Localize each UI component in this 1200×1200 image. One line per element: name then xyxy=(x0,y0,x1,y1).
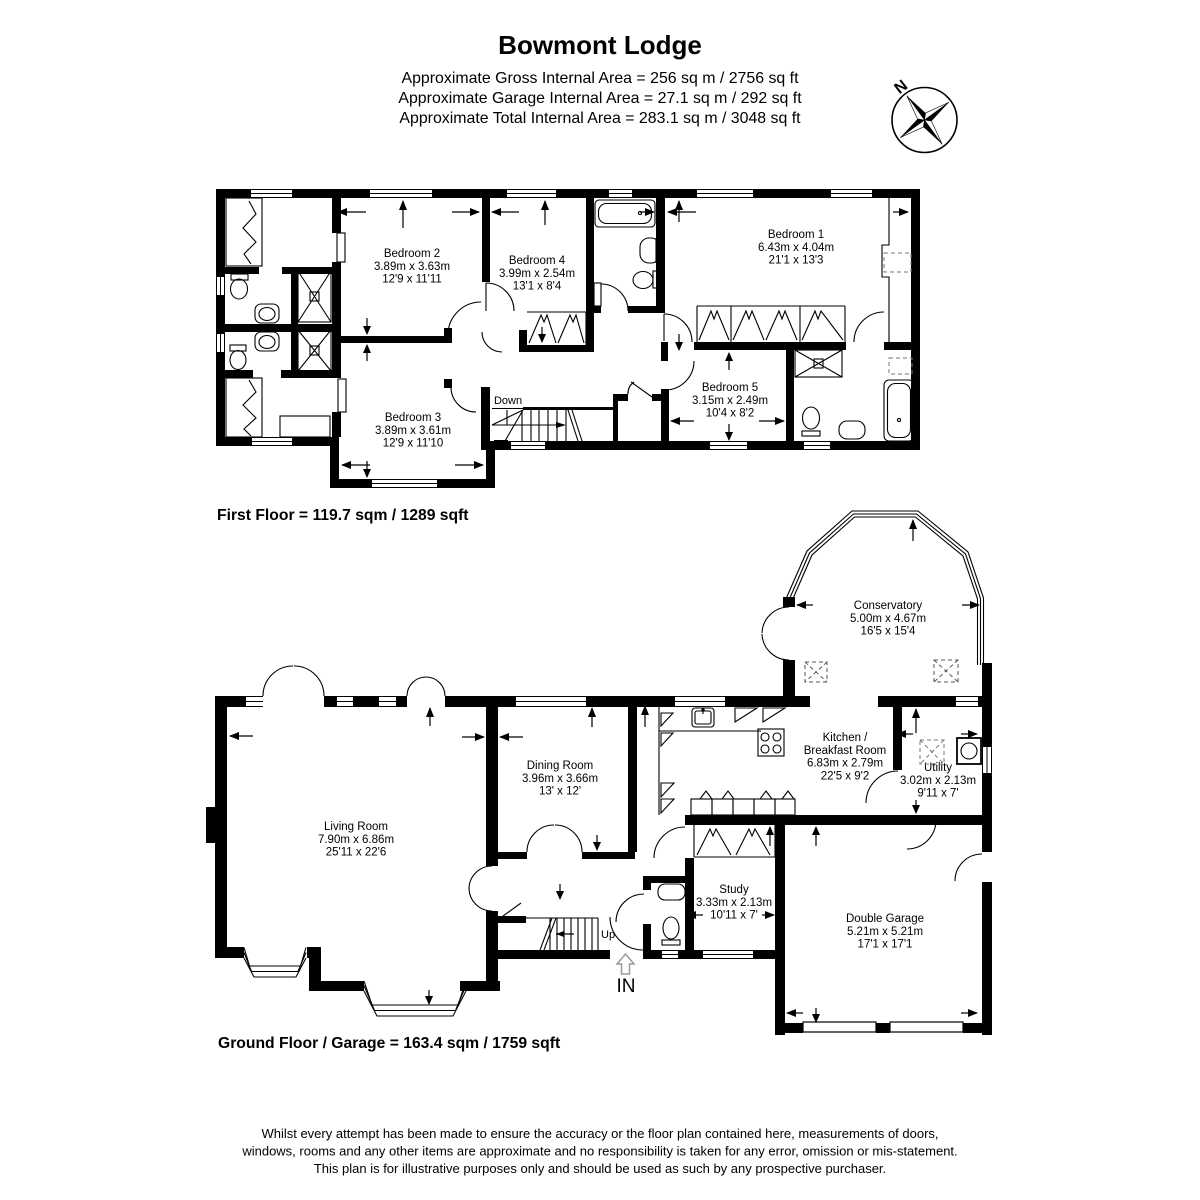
svg-text:Ground Floor / Garage = 163.4: Ground Floor / Garage = 163.4 sqm / 1759… xyxy=(218,1035,561,1052)
svg-text:Bedroom 16.43m x 4.04m21'1 x 1: Bedroom 16.43m x 4.04m21'1 x 13'3 xyxy=(758,229,834,267)
svg-text:Double Garage5.21m x 5.21m17'1: Double Garage5.21m x 5.21m17'1 x 17'1 xyxy=(846,913,924,951)
svg-text:Approximate Total Internal Are: Approximate Total Internal Area = 283.1 … xyxy=(399,110,801,127)
svg-text:Approximate Gross Internal Are: Approximate Gross Internal Area = 256 sq… xyxy=(401,70,799,87)
svg-text:Bedroom 33.89m x 3.61m12'9 x 1: Bedroom 33.89m x 3.61m12'9 x 11'10 xyxy=(375,412,451,450)
svg-text:Conservatory5.00m x 4.67m16'5: Conservatory5.00m x 4.67m16'5 x 15'4 xyxy=(850,600,926,638)
svg-text:IN: IN xyxy=(617,976,636,997)
svg-text:Down: Down xyxy=(494,395,522,407)
svg-text:windows, rooms and any other i: windows, rooms and any other items are a… xyxy=(241,1144,957,1159)
svg-text:Approximate Garage Internal Ar: Approximate Garage Internal Area = 27.1 … xyxy=(398,90,802,107)
svg-text:This plan is for illustrative: This plan is for illustrative purposes o… xyxy=(314,1161,886,1176)
svg-text:Bowmont Lodge: Bowmont Lodge xyxy=(498,30,702,60)
svg-text:Whilst every attempt has been: Whilst every attempt has been made to en… xyxy=(261,1126,938,1141)
svg-text:Bedroom 23.89m x 3.63m12'9 x 1: Bedroom 23.89m x 3.63m12'9 x 11'11 xyxy=(374,248,450,286)
svg-text:First Floor = 119.7 sqm / 1289: First Floor = 119.7 sqm / 1289 sqft xyxy=(217,507,469,524)
svg-text:Living Room7.90m x 6.86m25'11: Living Room7.90m x 6.86m25'11 x 22'6 xyxy=(318,821,394,859)
